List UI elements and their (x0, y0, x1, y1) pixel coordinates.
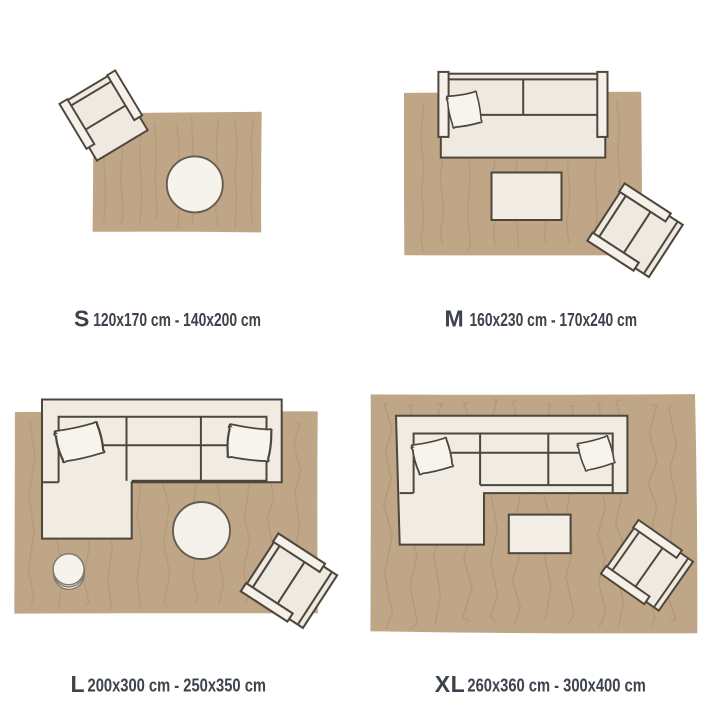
svg-text:S: S (74, 306, 90, 332)
svg-text:L: L (71, 671, 86, 697)
svg-text:XL: XL (435, 671, 465, 697)
svg-text:M: M (445, 306, 465, 332)
svg-text:120x170 cm - 140x200 cm: 120x170 cm - 140x200 cm (93, 310, 261, 330)
svg-text:200x300 cm - 250x350 cm: 200x300 cm - 250x350 cm (88, 676, 267, 696)
svg-text:260x360 cm - 300x400 cm: 260x360 cm - 300x400 cm (467, 676, 645, 696)
svg-text:160x230 cm - 170x240 cm: 160x230 cm - 170x240 cm (470, 310, 638, 330)
